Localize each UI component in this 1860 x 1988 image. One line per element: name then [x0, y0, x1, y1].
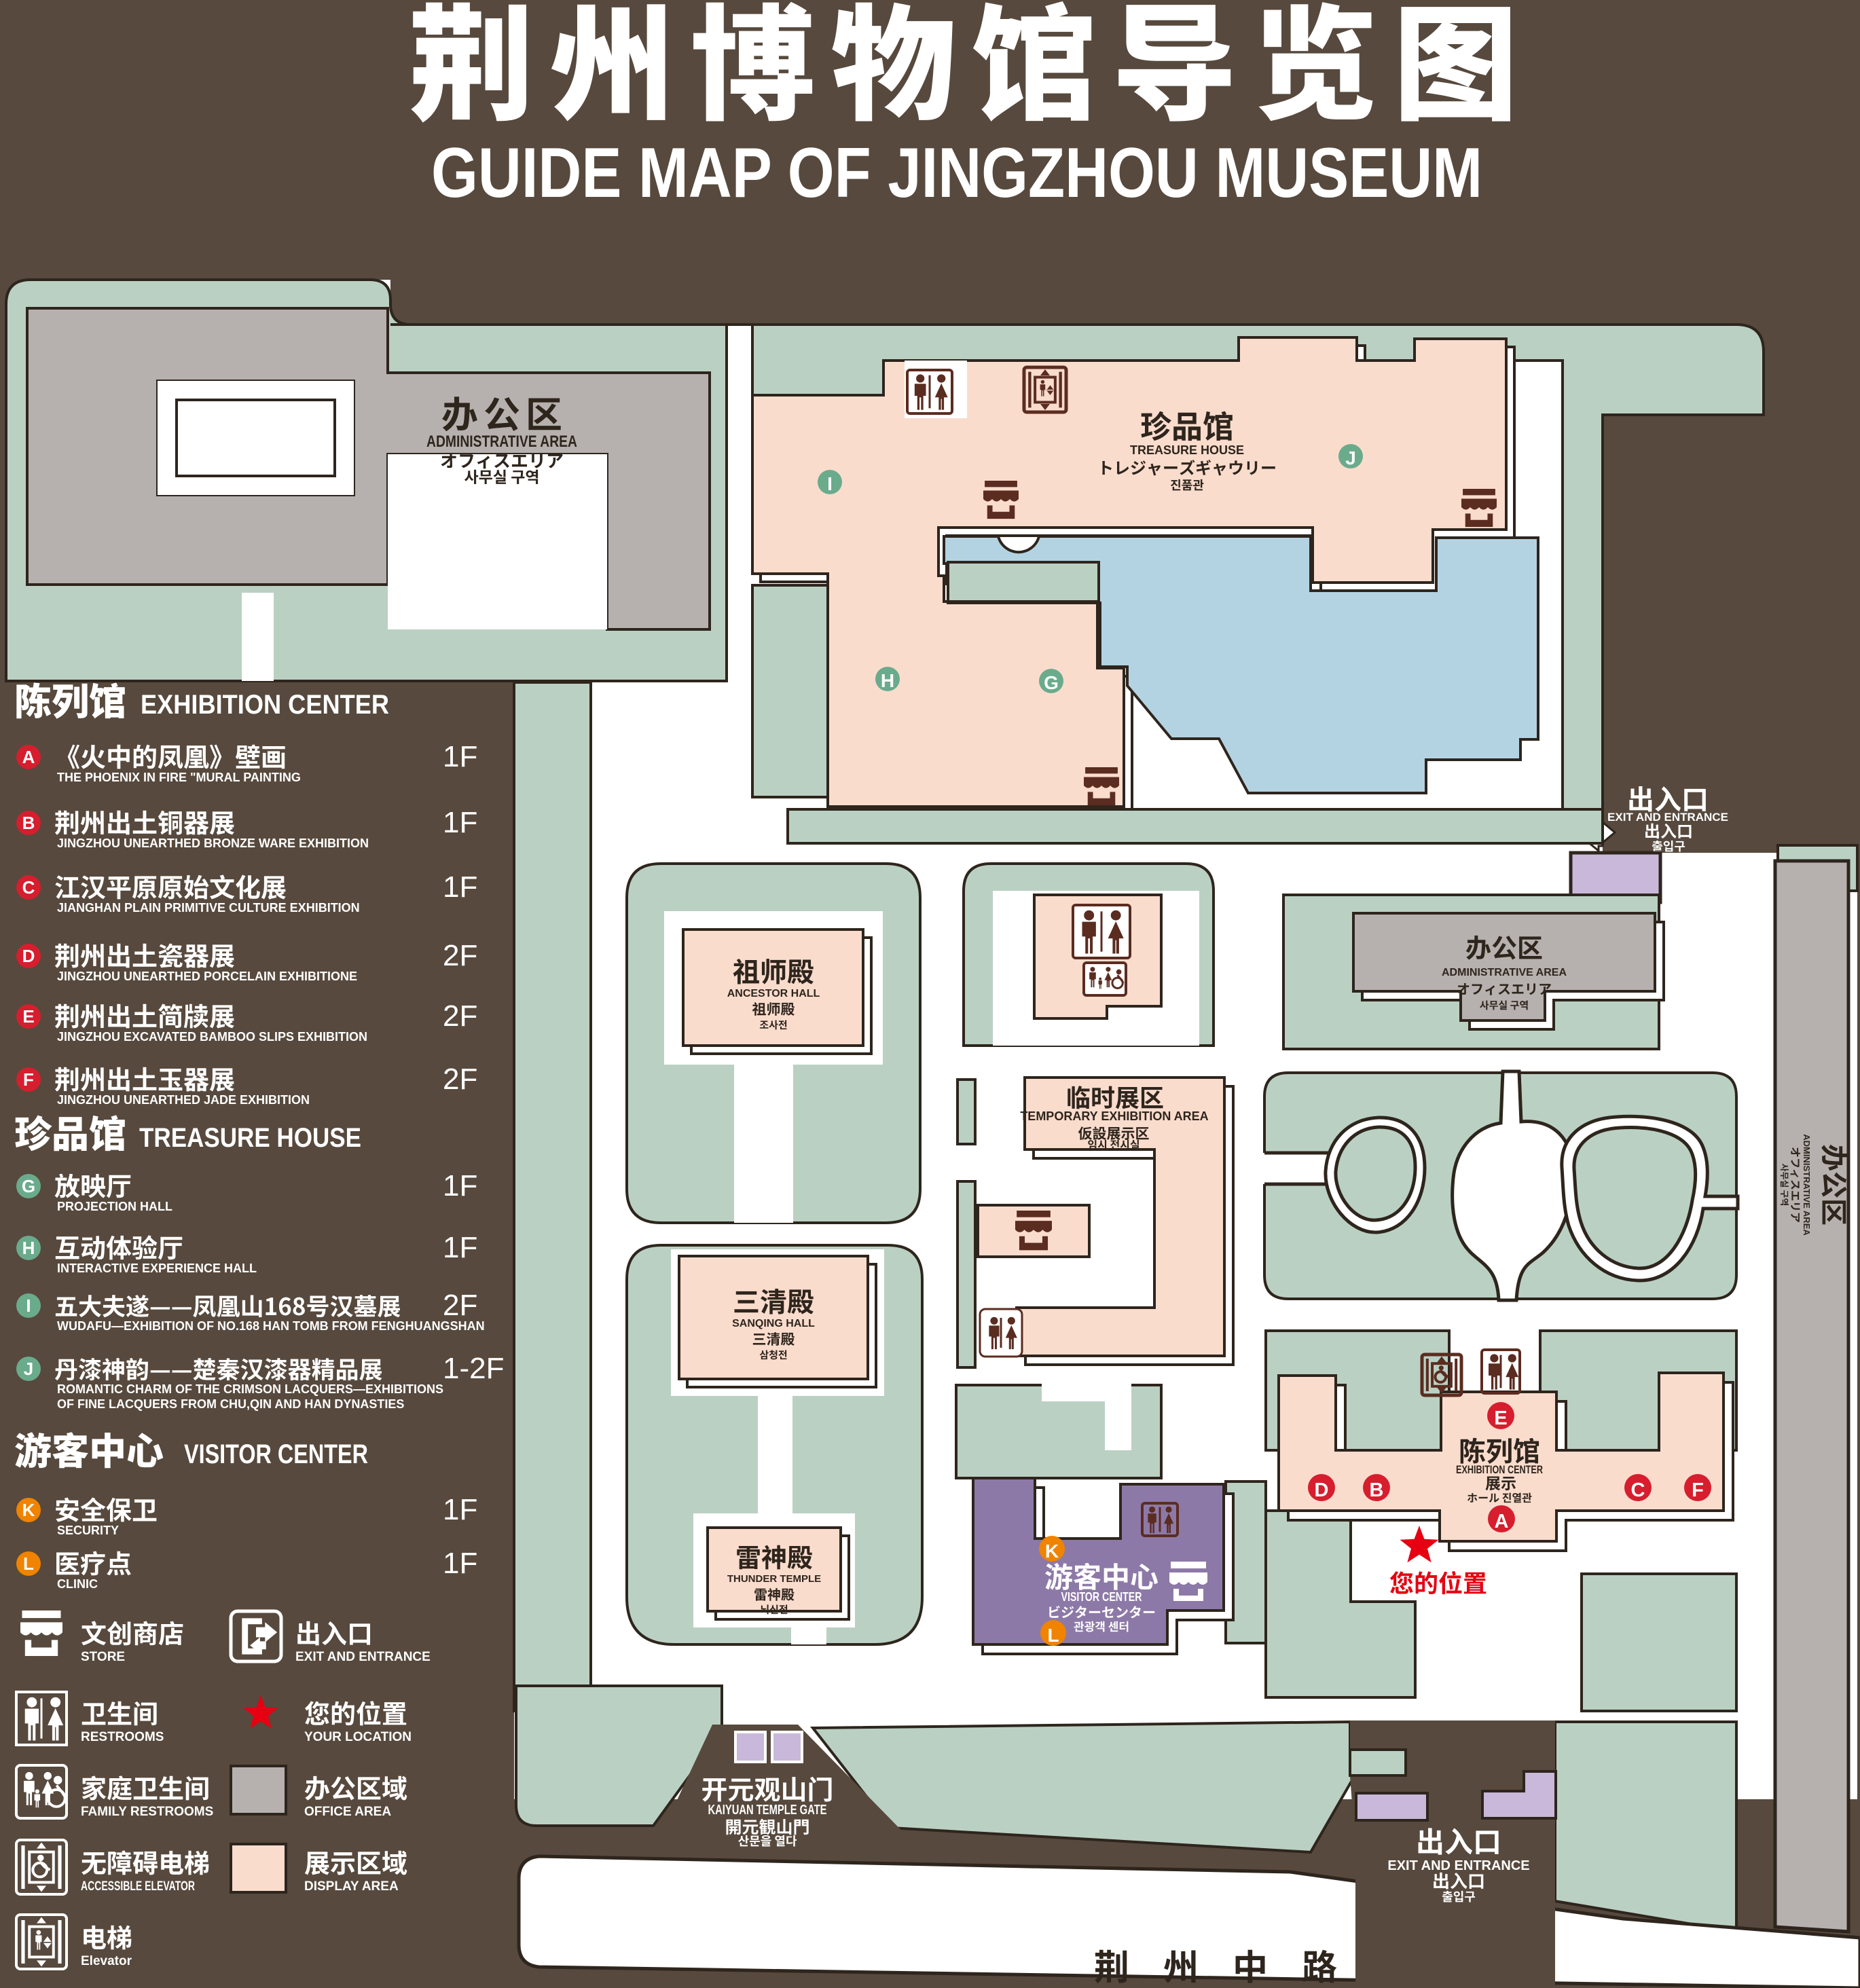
svg-text:VISITOR CENTER: VISITOR CENTER	[1061, 1590, 1142, 1604]
svg-text:EXHIBITION CENTER: EXHIBITION CENTER	[1456, 1463, 1543, 1476]
svg-text:SANQING HALL: SANQING HALL	[732, 1318, 815, 1329]
svg-text:D: D	[22, 946, 35, 966]
svg-text:1F: 1F	[443, 1547, 477, 1580]
svg-text:ROMANTIC CHARM OF THE CRIMSON: ROMANTIC CHARM OF THE CRIMSON LACQUERS—E…	[57, 1382, 443, 1396]
svg-text:THUNDER TEMPLE: THUNDER TEMPLE	[727, 1573, 821, 1585]
svg-text:1F: 1F	[443, 870, 477, 904]
svg-text:2F: 2F	[443, 999, 477, 1033]
svg-text:H: H	[881, 670, 894, 691]
svg-text:DISPLAY AREA: DISPLAY AREA	[304, 1879, 399, 1894]
svg-text:2F: 2F	[443, 939, 477, 972]
svg-text:I: I	[827, 473, 833, 494]
svg-text:E: E	[22, 1006, 34, 1027]
svg-text:PROJECTION HALL: PROJECTION HALL	[57, 1200, 172, 1213]
svg-text:E: E	[1494, 1407, 1507, 1429]
svg-text:B: B	[1370, 1479, 1384, 1501]
svg-text:C: C	[1631, 1479, 1645, 1501]
svg-text:1-2F: 1-2F	[443, 1352, 504, 1385]
svg-text:RESTROOMS: RESTROOMS	[81, 1730, 164, 1744]
svg-text:A: A	[1495, 1511, 1509, 1532]
svg-text:YOUR LOCATION: YOUR LOCATION	[304, 1730, 412, 1744]
svg-text:2F: 2F	[443, 1063, 477, 1096]
svg-text:TREASURE HOUSE: TREASURE HOUSE	[139, 1123, 361, 1153]
svg-text:EXIT AND ENTRANCE: EXIT AND ENTRANCE	[295, 1650, 431, 1664]
svg-text:JIANGHAN PLAIN PRIMITIVE CULTU: JIANGHAN PLAIN PRIMITIVE CULTURE EXHIBIT…	[57, 901, 360, 915]
svg-text:G: G	[22, 1176, 35, 1196]
svg-text:FAMILY RESTROOMS: FAMILY RESTROOMS	[81, 1805, 213, 1819]
svg-text:L: L	[1047, 1625, 1059, 1646]
svg-text:TEMPORARY EXHIBITION AREA: TEMPORARY EXHIBITION AREA	[1020, 1109, 1208, 1123]
svg-text:CLINIC: CLINIC	[57, 1577, 98, 1591]
svg-text:ADMINISTRATIVE AREA: ADMINISTRATIVE AREA	[1442, 967, 1567, 978]
svg-text:C: C	[22, 877, 35, 898]
svg-text:1F: 1F	[443, 1231, 477, 1264]
svg-text:EXIT AND ENTRANCE: EXIT AND ENTRANCE	[1387, 1858, 1529, 1873]
svg-text:INTERACTIVE EXPERIENCE HALL: INTERACTIVE EXPERIENCE HALL	[57, 1262, 257, 1275]
svg-text:B: B	[22, 813, 35, 833]
svg-text:L: L	[23, 1553, 34, 1574]
svg-text:1F: 1F	[443, 1493, 477, 1526]
svg-text:F: F	[1692, 1479, 1704, 1501]
svg-text:STORE: STORE	[81, 1650, 125, 1664]
svg-text:H: H	[22, 1238, 35, 1258]
svg-text:THE PHOENIX IN FIRE "MURAL PAI: THE PHOENIX IN FIRE "MURAL PAINTING	[57, 771, 301, 784]
svg-text:TREASURE HOUSE: TREASURE HOUSE	[1130, 443, 1244, 457]
svg-text:GUIDE MAP OF JINGZHOU MUSEUM: GUIDE MAP OF JINGZHOU MUSEUM	[431, 134, 1482, 213]
svg-text:J: J	[1345, 447, 1356, 468]
svg-text:EXIT AND ENTRANCE: EXIT AND ENTRANCE	[1607, 811, 1728, 824]
svg-text:ANCESTOR HALL: ANCESTOR HALL	[727, 988, 820, 999]
svg-text:JINGZHOU EXCAVATED BAMBOO SLIP: JINGZHOU EXCAVATED BAMBOO SLIPS EXHIBITI…	[57, 1030, 367, 1044]
svg-text:EXHIBITION CENTER: EXHIBITION CENTER	[141, 690, 389, 720]
svg-text:OFFICE AREA: OFFICE AREA	[304, 1805, 391, 1819]
svg-text:ACCESSIBLE ELEVATOR: ACCESSIBLE ELEVATOR	[81, 1879, 195, 1894]
svg-text:OF FINE LACQUERS FROM CHU,QIN: OF FINE LACQUERS FROM CHU,QIN AND HAN DY…	[57, 1397, 404, 1411]
svg-text:SECURITY: SECURITY	[57, 1524, 119, 1537]
svg-text:ADMINISTRATIVE AREA: ADMINISTRATIVE AREA	[1802, 1134, 1812, 1236]
svg-text:JINGZHOU UNEARTHED JADE EXHIBI: JINGZHOU UNEARTHED JADE EXHIBITION	[57, 1093, 310, 1107]
svg-text:VISITOR CENTER: VISITOR CENTER	[184, 1439, 368, 1469]
svg-text:2F: 2F	[443, 1289, 477, 1322]
svg-text:WUDAFU—EXHIBITION OF NO.168 HA: WUDAFU—EXHIBITION OF NO.168 HAN TOMB FRO…	[57, 1319, 485, 1333]
svg-text:KAIYUAN TEMPLE GATE: KAIYUAN TEMPLE GATE	[708, 1803, 827, 1818]
svg-text:JINGZHOU UNEARTHED BRONZE WARE: JINGZHOU UNEARTHED BRONZE WARE EXHIBITIO…	[57, 836, 369, 850]
svg-text:ADMINISTRATIVE AREA: ADMINISTRATIVE AREA	[426, 432, 577, 451]
svg-text:D: D	[1315, 1479, 1329, 1501]
svg-text:1F: 1F	[443, 1169, 477, 1202]
svg-text:Elevator: Elevator	[81, 1954, 132, 1968]
svg-text:F: F	[23, 1069, 34, 1090]
svg-text:JINGZHOU UNEARTHED PORCELAIN E: JINGZHOU UNEARTHED PORCELAIN EXHIBITIONE	[57, 970, 357, 983]
svg-text:1F: 1F	[443, 740, 477, 773]
svg-text:G: G	[1044, 672, 1059, 693]
svg-text:1F: 1F	[443, 806, 477, 839]
svg-text:K: K	[1045, 1541, 1059, 1562]
svg-text:I: I	[26, 1295, 31, 1316]
svg-text:J: J	[24, 1359, 33, 1379]
svg-text:A: A	[22, 747, 35, 767]
svg-text:K: K	[22, 1500, 35, 1520]
